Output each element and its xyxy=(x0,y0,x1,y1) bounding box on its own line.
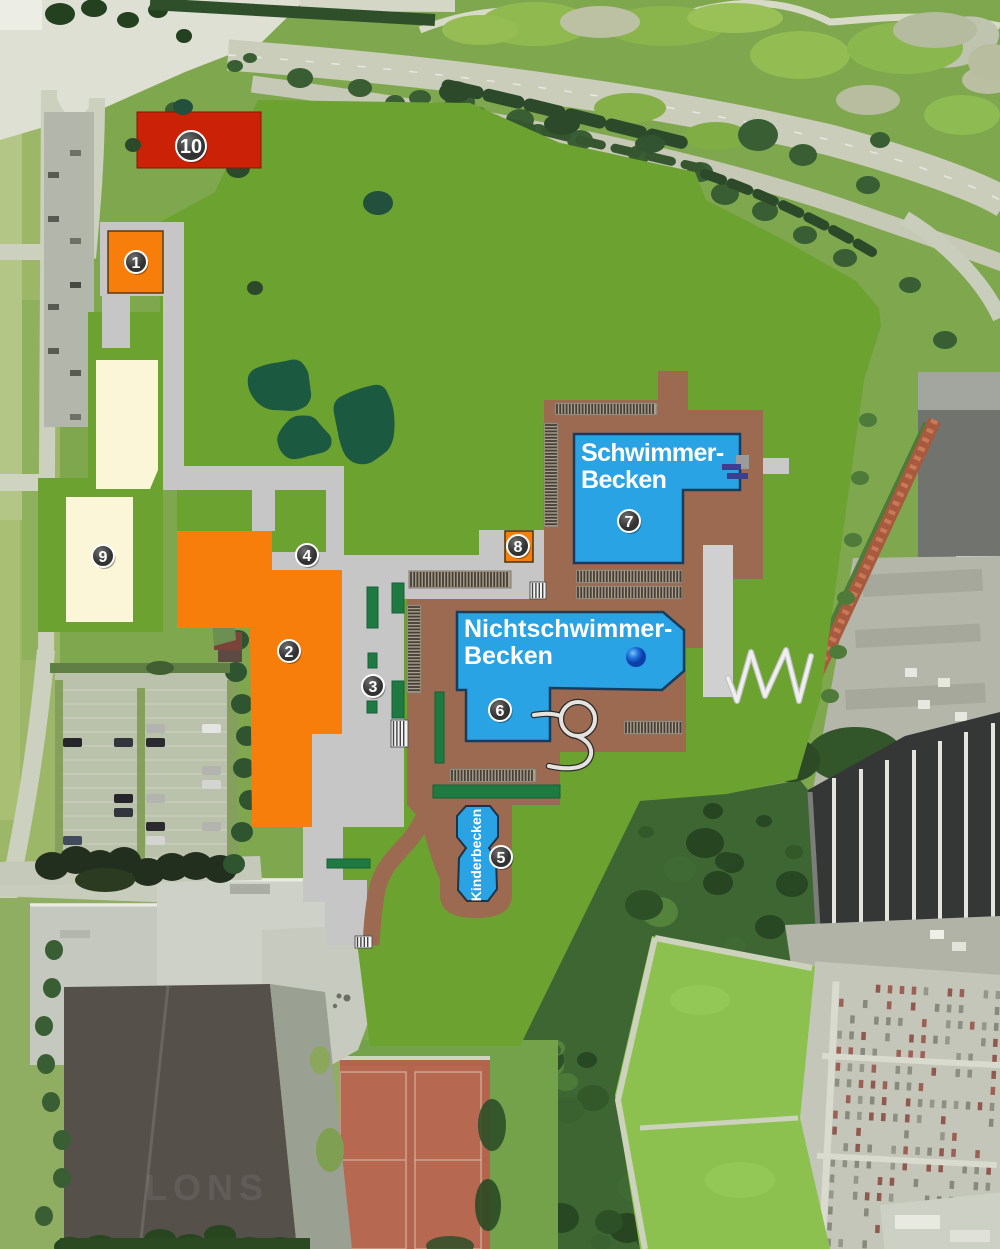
svg-text:8: 8 xyxy=(514,539,523,556)
svg-text:Kinderbecken: Kinderbecken xyxy=(468,809,484,902)
svg-text:4: 4 xyxy=(303,548,312,565)
svg-text:9: 9 xyxy=(99,549,108,566)
svg-text:Becken: Becken xyxy=(581,466,666,494)
svg-text:LONS: LONS xyxy=(145,1167,269,1208)
svg-text:10: 10 xyxy=(180,136,202,158)
svg-text:1: 1 xyxy=(132,255,141,272)
svg-text:Becken: Becken xyxy=(464,642,553,670)
svg-text:3: 3 xyxy=(369,679,378,696)
svg-text:5: 5 xyxy=(497,850,506,867)
svg-text:Schwimmer-: Schwimmer- xyxy=(581,439,724,467)
svg-text:2: 2 xyxy=(285,644,294,661)
svg-text:Nichtschwimmer-: Nichtschwimmer- xyxy=(464,615,672,643)
svg-text:7: 7 xyxy=(625,514,634,531)
svg-text:6: 6 xyxy=(496,703,505,720)
